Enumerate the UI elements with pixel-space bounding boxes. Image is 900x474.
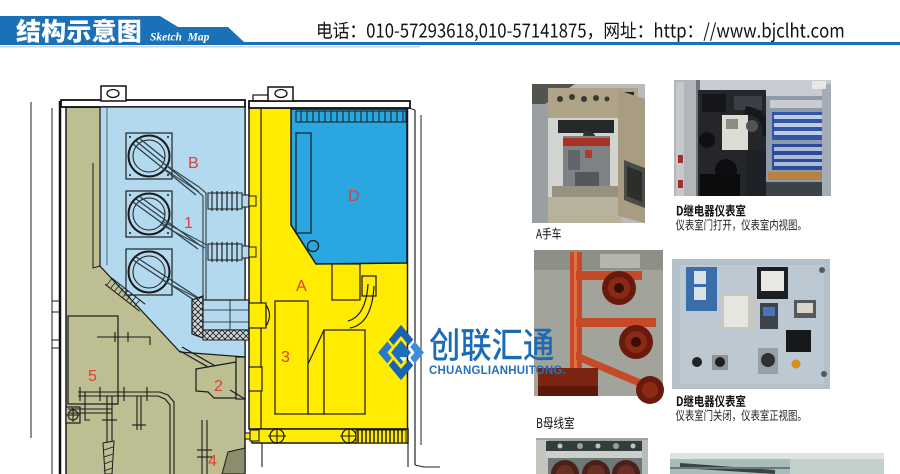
svg-text:4: 4 bbox=[208, 453, 217, 470]
svg-text:2: 2 bbox=[214, 378, 223, 395]
svg-text:Sketch Map: Sketch Map bbox=[150, 32, 210, 44]
svg-text:B: B bbox=[188, 155, 199, 172]
svg-text:3: 3 bbox=[281, 349, 290, 366]
svg-text:D: D bbox=[348, 188, 360, 205]
svg-text:5: 5 bbox=[88, 368, 97, 385]
svg-text:1: 1 bbox=[184, 215, 193, 232]
svg-text:CHUANGLIANHUITONG.: CHUANGLIANHUITONG. bbox=[429, 365, 566, 377]
svg-text:A: A bbox=[296, 278, 307, 295]
